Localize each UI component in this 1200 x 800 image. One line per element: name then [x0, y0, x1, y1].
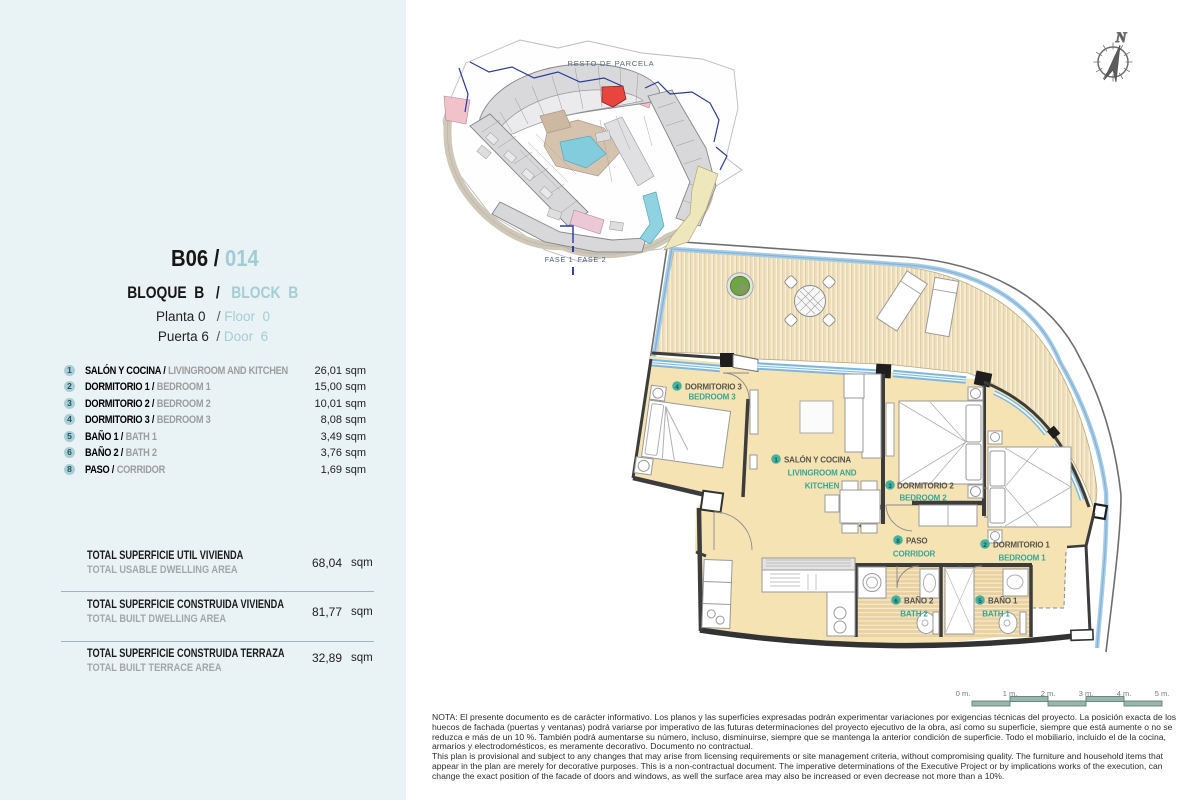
svg-text:5: 5 [978, 598, 982, 605]
svg-text:KITCHEN: KITCHEN [805, 482, 840, 491]
svg-text:BEDROOM 2: BEDROOM 2 [899, 494, 947, 503]
svg-text:BATH 2: BATH 2 [900, 610, 928, 619]
svg-text:3: 3 [888, 483, 892, 490]
svg-text:2 m.: 2 m. [1041, 689, 1056, 698]
svg-text:BEDROOM 1: BEDROOM 1 [998, 554, 1046, 563]
svg-text:BAÑO 2: BAÑO 2 [904, 597, 934, 606]
svg-text:5 m.: 5 m. [1155, 689, 1170, 698]
svg-text:N: N [1115, 30, 1128, 46]
svg-text:DORMITORIO 2: DORMITORIO 2 [897, 482, 954, 491]
svg-text:BEDROOM 3: BEDROOM 3 [688, 393, 736, 402]
svg-text:4: 4 [675, 384, 679, 391]
svg-text:BATH 1: BATH 1 [982, 610, 1010, 619]
svg-text:FASE 1: FASE 1 [545, 255, 574, 264]
svg-text:LIVINGROOM AND: LIVINGROOM AND [788, 469, 857, 478]
svg-text:1: 1 [774, 457, 778, 464]
svg-text:6: 6 [894, 598, 898, 605]
svg-text:BAÑO 1: BAÑO 1 [988, 597, 1018, 606]
svg-text:1 m.: 1 m. [1003, 689, 1018, 698]
svg-text:PASO: PASO [906, 537, 927, 546]
svg-text:DORMITORIO 1: DORMITORIO 1 [993, 541, 1050, 550]
svg-text:0 m.: 0 m. [956, 689, 971, 698]
svg-text:3 m.: 3 m. [1079, 689, 1094, 698]
svg-text:RESTO DE PARCELA: RESTO DE PARCELA [568, 59, 655, 68]
svg-text:4 m.: 4 m. [1117, 689, 1132, 698]
svg-text:DORMITORIO 3: DORMITORIO 3 [685, 383, 742, 392]
svg-text:8: 8 [896, 538, 900, 545]
svg-text:FASE 2: FASE 2 [578, 255, 607, 264]
svg-text:CORRIDOR: CORRIDOR [893, 550, 936, 559]
svg-text:2: 2 [983, 542, 987, 549]
svg-text:SALÓN Y COCINA: SALÓN Y COCINA [784, 456, 851, 465]
